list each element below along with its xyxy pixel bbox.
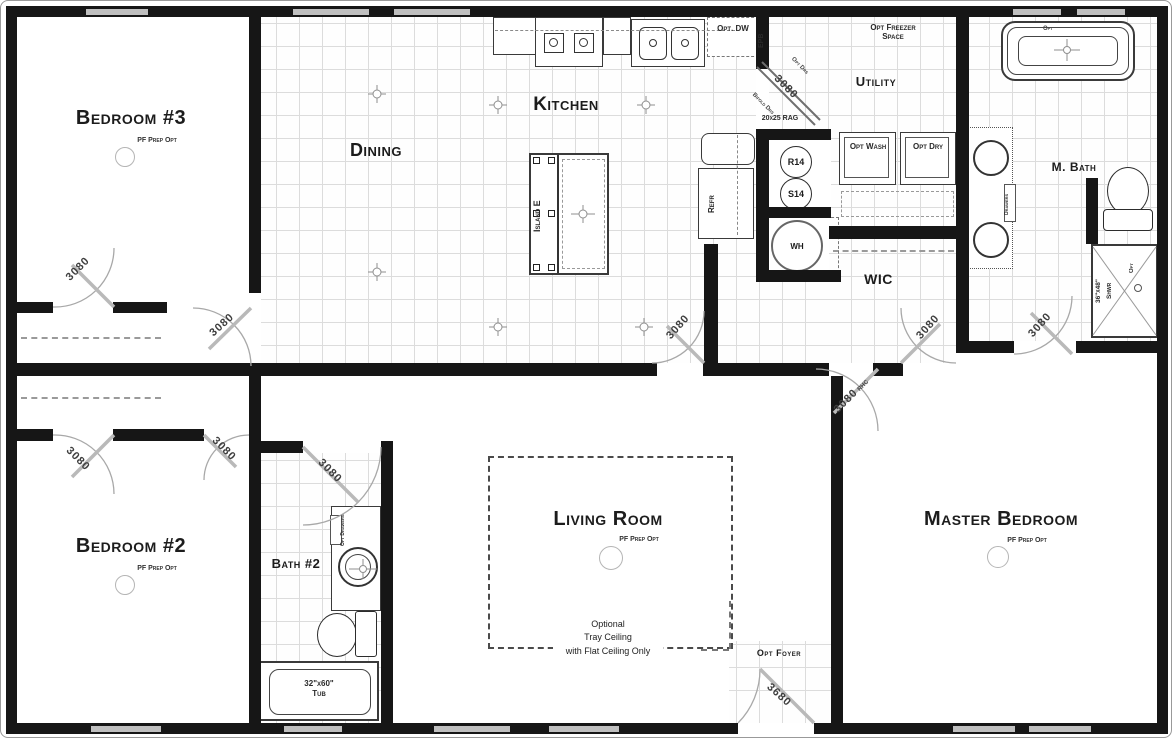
bedroom2-label: Bedroom #2 bbox=[41, 535, 221, 558]
shower-drain bbox=[1134, 284, 1142, 292]
tray-note-1: Optional bbox=[568, 619, 648, 629]
island-label: Island E bbox=[532, 171, 552, 261]
return-air-grille-label: 20x25 RAG bbox=[749, 115, 811, 122]
mbath-label: M. Bath bbox=[1041, 160, 1107, 174]
tub2-size-label: 32"x60" bbox=[281, 679, 357, 688]
ceiling-light-symbol bbox=[368, 85, 386, 103]
ceiling-light-symbol bbox=[489, 96, 507, 114]
ceiling-light-symbol bbox=[368, 263, 386, 281]
entry-door-arc bbox=[738, 669, 760, 723]
electrical-panel-label: EPB bbox=[758, 19, 772, 63]
dishwasher-label: Opt. DW bbox=[713, 25, 753, 34]
ceiling-light-symbol bbox=[635, 318, 653, 336]
freezer-space-note: Opt Freezer Space bbox=[863, 23, 923, 41]
shower-size-label: 36"x48" bbox=[1095, 251, 1106, 331]
foyer-label: Opt Foyer bbox=[743, 648, 815, 658]
bedroom3-label: Bedroom #3 bbox=[41, 107, 221, 130]
bath2-sink-cross bbox=[349, 559, 377, 579]
living-label: Living Room bbox=[518, 508, 698, 531]
utility-label: Utility bbox=[836, 74, 916, 89]
wic-label: WIC bbox=[846, 271, 911, 287]
washer-label: Opt Wash bbox=[849, 142, 887, 152]
shower-opt-label: Opt bbox=[1129, 257, 1139, 279]
kitchen-label: Kitchen bbox=[511, 94, 621, 116]
mbath-drawers-label: Drawers bbox=[1004, 185, 1016, 223]
refrigerator-label: Refr bbox=[707, 179, 723, 229]
shower-name-label: Shwr bbox=[1106, 255, 1117, 327]
bath2-label: Bath #2 bbox=[263, 556, 329, 571]
floor-plan: Opt. DW EPB 20x25 RAG Island E Refr R14 … bbox=[0, 0, 1172, 738]
dining-label: Dining bbox=[326, 140, 426, 161]
bedroom3-note: PF Prep Opt bbox=[127, 137, 187, 144]
dryer-label: Opt Dry bbox=[910, 142, 946, 152]
master-note: PF Prep Opt bbox=[997, 537, 1057, 544]
ceiling-light-symbol bbox=[637, 96, 655, 114]
island-light-symbol bbox=[571, 205, 595, 223]
ceiling-light-symbol bbox=[489, 318, 507, 336]
master-tub-opt-label: Opt bbox=[1043, 26, 1053, 32]
bath2-drawers-label: Opt Drawers bbox=[341, 513, 357, 547]
tray-note-2: Tray Ceiling bbox=[568, 632, 648, 642]
bedroom2-note: PF Prep Opt bbox=[127, 565, 187, 572]
tray-note-3: with Flat Ceiling Only bbox=[553, 646, 663, 656]
master-label: Master Bedroom bbox=[879, 508, 1123, 531]
tub-faucet-cross bbox=[1054, 39, 1080, 61]
tub2-name-label: Tub bbox=[281, 689, 357, 698]
living-note: PF Prep Opt bbox=[609, 536, 669, 543]
